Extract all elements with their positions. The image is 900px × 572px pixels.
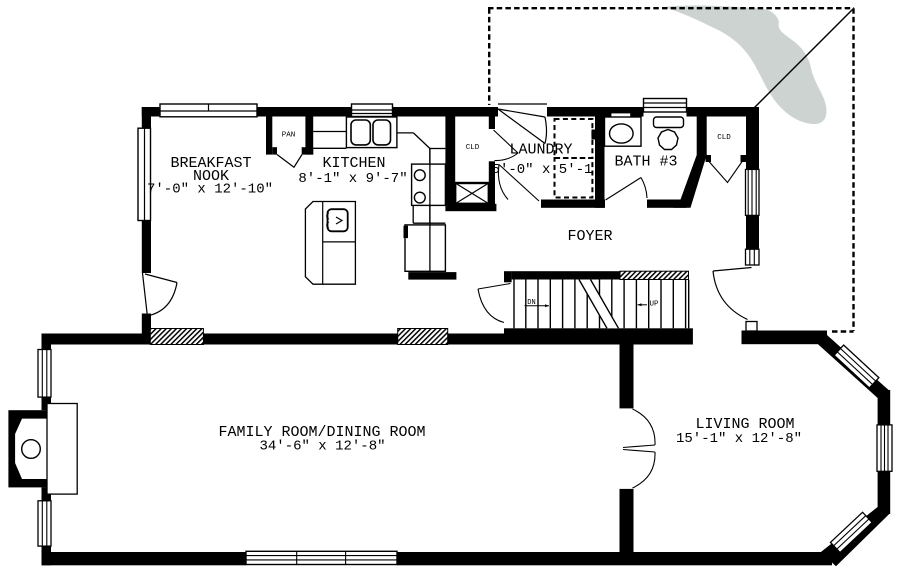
svg-text:8'-1" x 9'-7": 8'-1" x 9'-7" xyxy=(298,171,407,187)
svg-text:34'-6" x 12'-8": 34'-6" x 12'-8" xyxy=(259,439,385,455)
svg-text:15'-1" x 12'-8": 15'-1" x 12'-8" xyxy=(676,431,802,447)
svg-text:FOYER: FOYER xyxy=(567,228,612,245)
svg-text:7'-0" x 12'-10": 7'-0" x 12'-10" xyxy=(147,182,273,198)
svg-text:UP: UP xyxy=(649,301,659,309)
svg-text:CLD: CLD xyxy=(717,134,731,142)
svg-text:PAN: PAN xyxy=(282,132,296,140)
svg-text:5'-0" x 5'-1: 5'-0" x 5'-1 xyxy=(492,162,593,178)
svg-text:CLD: CLD xyxy=(466,144,480,152)
svg-text:BATH #3: BATH #3 xyxy=(614,154,677,171)
svg-text:KITCHEN: KITCHEN xyxy=(322,155,385,172)
svg-text:LAUNDRY: LAUNDRY xyxy=(509,142,572,159)
